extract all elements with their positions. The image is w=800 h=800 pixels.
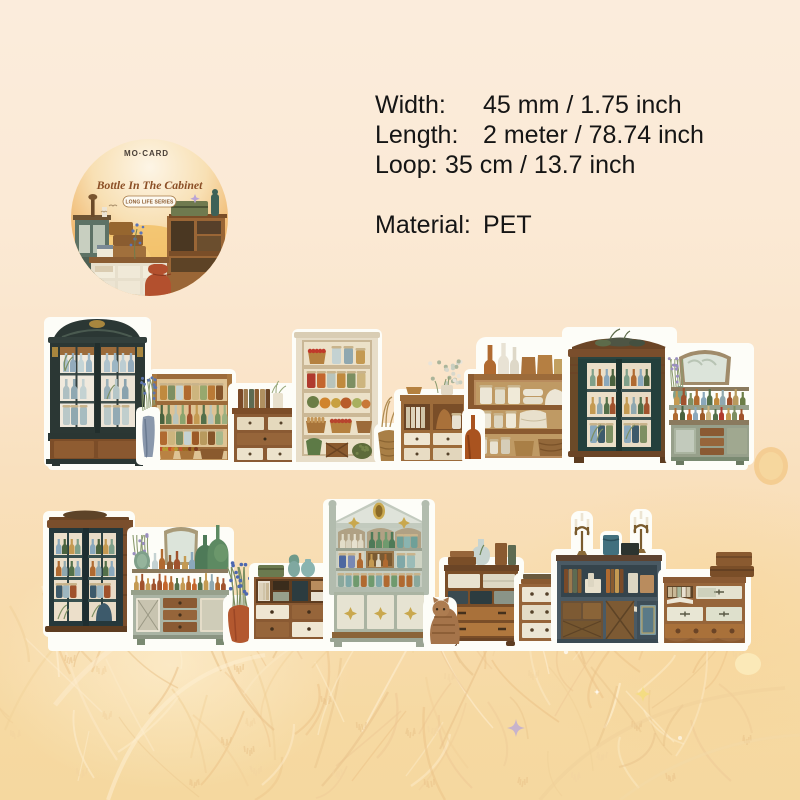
svg-text:Bottle In The Cabinet: Bottle In The Cabinet [96, 178, 204, 192]
svg-text:MO·CARD: MO·CARD [124, 149, 169, 158]
svg-text:LONG LIFE SERIES: LONG LIFE SERIES [126, 200, 175, 206]
